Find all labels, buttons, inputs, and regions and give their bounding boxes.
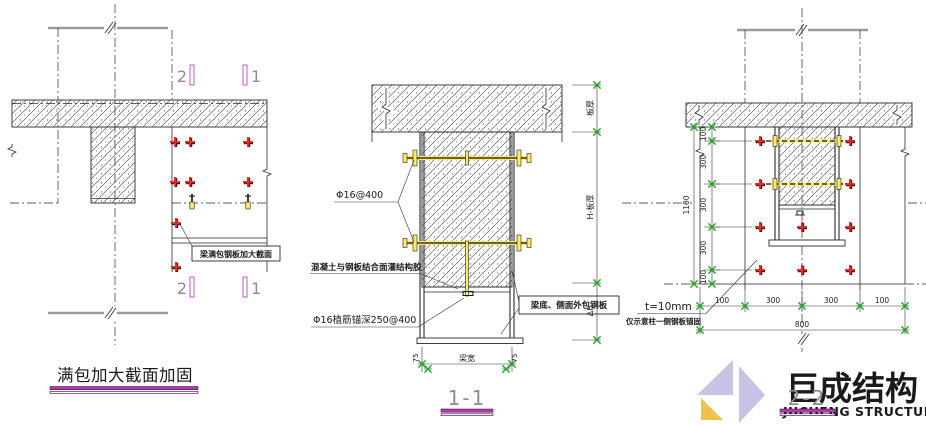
note-text: 仅示意柱一侧钢板锚固 [625,316,701,326]
anchor-bolt-icon [243,137,253,147]
bolt-washer [837,136,841,147]
right-drawing-section-2-2: 100 300 300 300 100 1100 100 300 300 100… [622,8,926,352]
bolt-washer [773,136,777,147]
dim-web-height: H-板厚 [585,195,595,220]
bolt-nut [403,239,407,248]
dim-total: 800 [795,320,810,329]
dim-segment: 300 [766,296,781,305]
break-mask [104,306,117,320]
dim-slab-thickness: 板厚 [585,100,595,116]
dim-beam-width: 梁宽 [459,353,475,363]
callout-text: 梁满包钢板加大截面 [199,249,272,259]
anchor-bolt-icon [243,177,253,187]
anchor-bolt-icon [845,265,855,275]
dim-segment: 100 [875,296,890,305]
title-underline [780,414,835,416]
beam-end-hatch [779,127,835,205]
anchor-bolt-icon [170,137,180,147]
planted-rebar [466,241,469,296]
dim-segment: 100 [699,127,708,142]
anchor-bolt-icon [185,137,195,147]
middle-drawing-section-1-1: Φ16@400 混凝土与钢板结合面灌结构胶 Φ16植筋锚深250@400 梁底、… [310,81,619,415]
anchor-bolt-icon [845,222,855,232]
planted-rebar-label: Φ16植筋锚深250@400 [313,314,416,326]
bolt-washer [413,150,417,166]
title-underline [441,409,493,412]
dim-tick-icon [502,365,510,372]
bolt-washer [517,150,521,166]
section-number: 2 [177,279,187,298]
anchor-bolt-icon [755,222,765,232]
column-edges-above [745,30,860,103]
bolt-center-tie [466,151,469,165]
dim-segment: 100 [699,270,708,285]
dim-delta-h: Δh [586,306,595,317]
title-underline [780,409,835,412]
bolt-washer [413,235,417,251]
title-underline [50,387,198,390]
anchor-bolt-icon [797,265,807,275]
plate-thickness-label: t=10mm [645,301,692,313]
slab-hatch [12,100,267,127]
cad-drawing-canvas: 梁满包钢板加大截面 2 1 2 1 满包加大截面加固 [0,0,926,425]
callout-leader [180,224,193,248]
beam-bottom-plate-lines [172,238,267,243]
dim-segment: 300 [699,241,708,256]
section-marker-icon [243,65,247,85]
anchor-bolt-icon [171,218,181,228]
bolt-spacing-label: Φ16@400 [336,190,383,201]
break-mask [795,23,808,37]
beam-hatch [91,127,135,203]
plate-label-text: 梁底、侧面外包钢板 [530,300,608,311]
dim-tick-icon [424,365,432,372]
break-mask [798,333,809,345]
logo-mark-yellow-triangle [701,398,723,420]
bolt-nut [527,239,531,248]
bolt-washer [837,179,841,190]
adhesive-label: 混凝土与钢板结合面灌结构胶 [311,262,422,273]
dim-segment: 300 [699,198,708,213]
anchor-bolt-icon [755,265,765,275]
through-bolt-icon [245,194,251,209]
middle-drawing-title: 1-1 [448,386,487,410]
anchor-bolt-icon [755,179,765,189]
beam-bottom-lines [779,205,835,209]
slab-hatch [372,85,562,132]
left-drawing-full-wrap-elevation: 梁满包钢板加大截面 2 1 2 1 满包加大截面加固 [8,4,280,393]
section-marker-icon [243,277,247,297]
anchor-bolt-icon [170,177,180,187]
section-number: 1 [251,67,261,86]
anchor-bolt-icon [797,222,807,232]
left-drawing-title: 满包加大截面加固 [57,366,193,385]
anchor-bolt-icon [845,179,855,189]
bottom-plate [769,240,845,246]
logo-mark-upper-triangle [697,360,733,395]
bolt-washer [773,179,777,190]
title-underline [441,414,493,416]
bolt-washer [517,235,521,251]
section-marker-icon [190,277,194,297]
section-marker-icon [190,65,194,85]
through-bolt-icon [189,194,195,209]
bolt-nut [527,154,531,163]
bolt-nut [403,154,407,163]
anchor-bolt-icon [755,136,765,146]
dim-segment: 100 [715,296,730,305]
slab-hatch [686,103,912,127]
anchor-row-connectors [712,141,752,270]
right-drawing-title: 2-2 [788,386,827,410]
dim-offset: 75 [412,354,420,363]
logo-mark-play-triangle [739,366,765,423]
anchor-bolt-icon [171,262,181,272]
section-number: 1 [251,279,261,298]
dim-segment: 300 [699,155,708,170]
anchor-bolt-icon [185,177,195,187]
section-number: 2 [177,67,187,86]
dim-total: 1100 [682,195,691,214]
bolt-label-leader [334,160,414,242]
anchor-bolt-icon [845,136,855,146]
bottom-plate [417,338,523,344]
dim-offset: 75 [511,354,519,363]
title-underline [50,392,198,394]
cad-sheet: 梁满包钢板加大截面 2 1 2 1 满包加大截面加固 [0,0,926,425]
dim-segment: 300 [824,296,839,305]
